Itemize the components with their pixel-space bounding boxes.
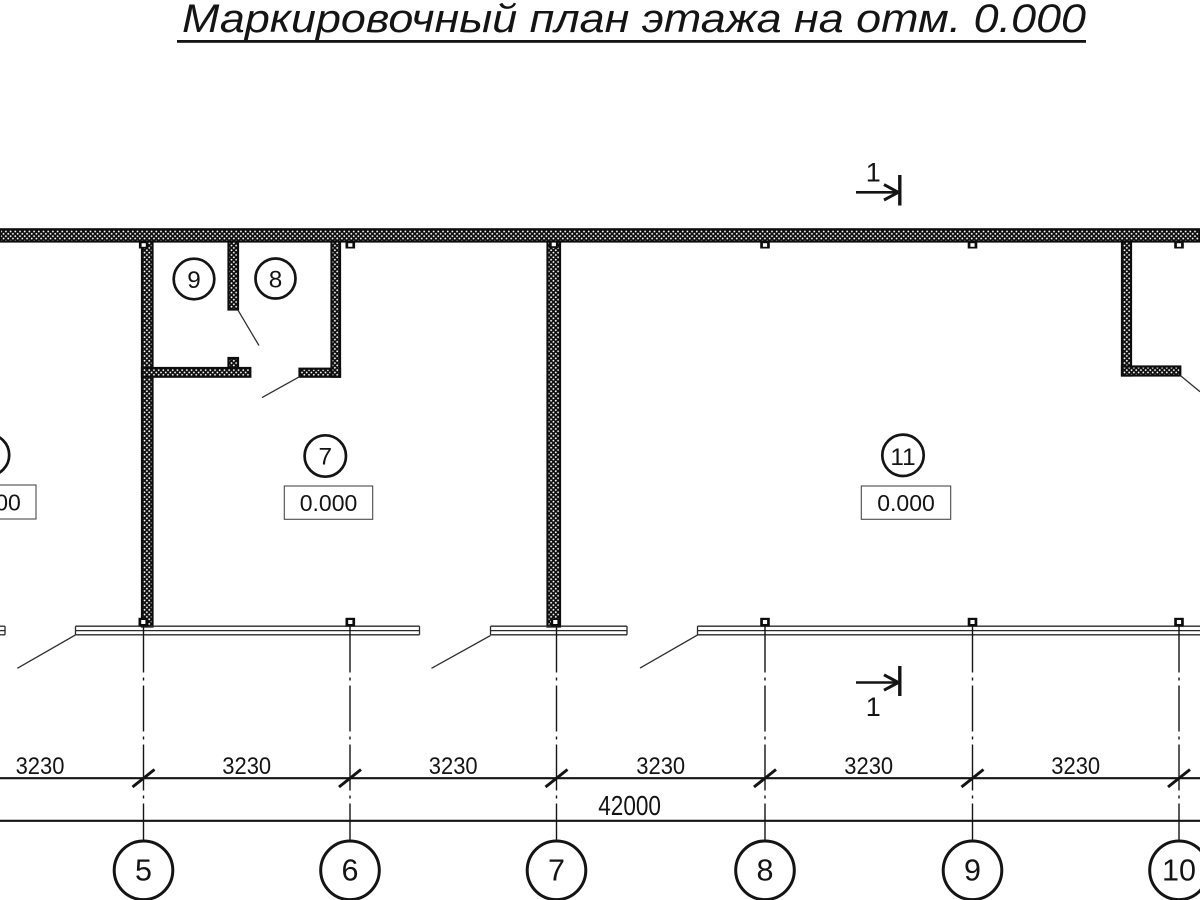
svg-text:1: 1 — [866, 157, 881, 187]
svg-text:0.000: 0.000 — [0, 490, 21, 516]
svg-text:3230: 3230 — [16, 753, 65, 780]
svg-text:Маркировочный план этажа на от: Маркировочный план этажа на отм. 0.000 — [182, 0, 1086, 41]
svg-text:1: 1 — [866, 692, 881, 722]
svg-text:3230: 3230 — [844, 753, 893, 780]
svg-text:3230: 3230 — [1051, 753, 1100, 780]
svg-text:8: 8 — [269, 266, 283, 293]
svg-text:0.000: 0.000 — [300, 490, 358, 516]
svg-text:3230: 3230 — [222, 753, 271, 780]
svg-text:0.000: 0.000 — [877, 490, 935, 516]
svg-text:9: 9 — [964, 854, 981, 888]
svg-text:7: 7 — [548, 854, 565, 888]
svg-text:5: 5 — [135, 854, 152, 888]
svg-text:6: 6 — [342, 854, 359, 888]
svg-text:3230: 3230 — [429, 753, 478, 780]
svg-text:3230: 3230 — [636, 753, 685, 780]
svg-text:7: 7 — [319, 443, 333, 470]
svg-text:11: 11 — [890, 444, 915, 471]
svg-text:9: 9 — [187, 267, 201, 294]
svg-text:8: 8 — [757, 854, 774, 888]
svg-text:10: 10 — [1162, 854, 1196, 888]
svg-text:42000: 42000 — [598, 790, 661, 821]
